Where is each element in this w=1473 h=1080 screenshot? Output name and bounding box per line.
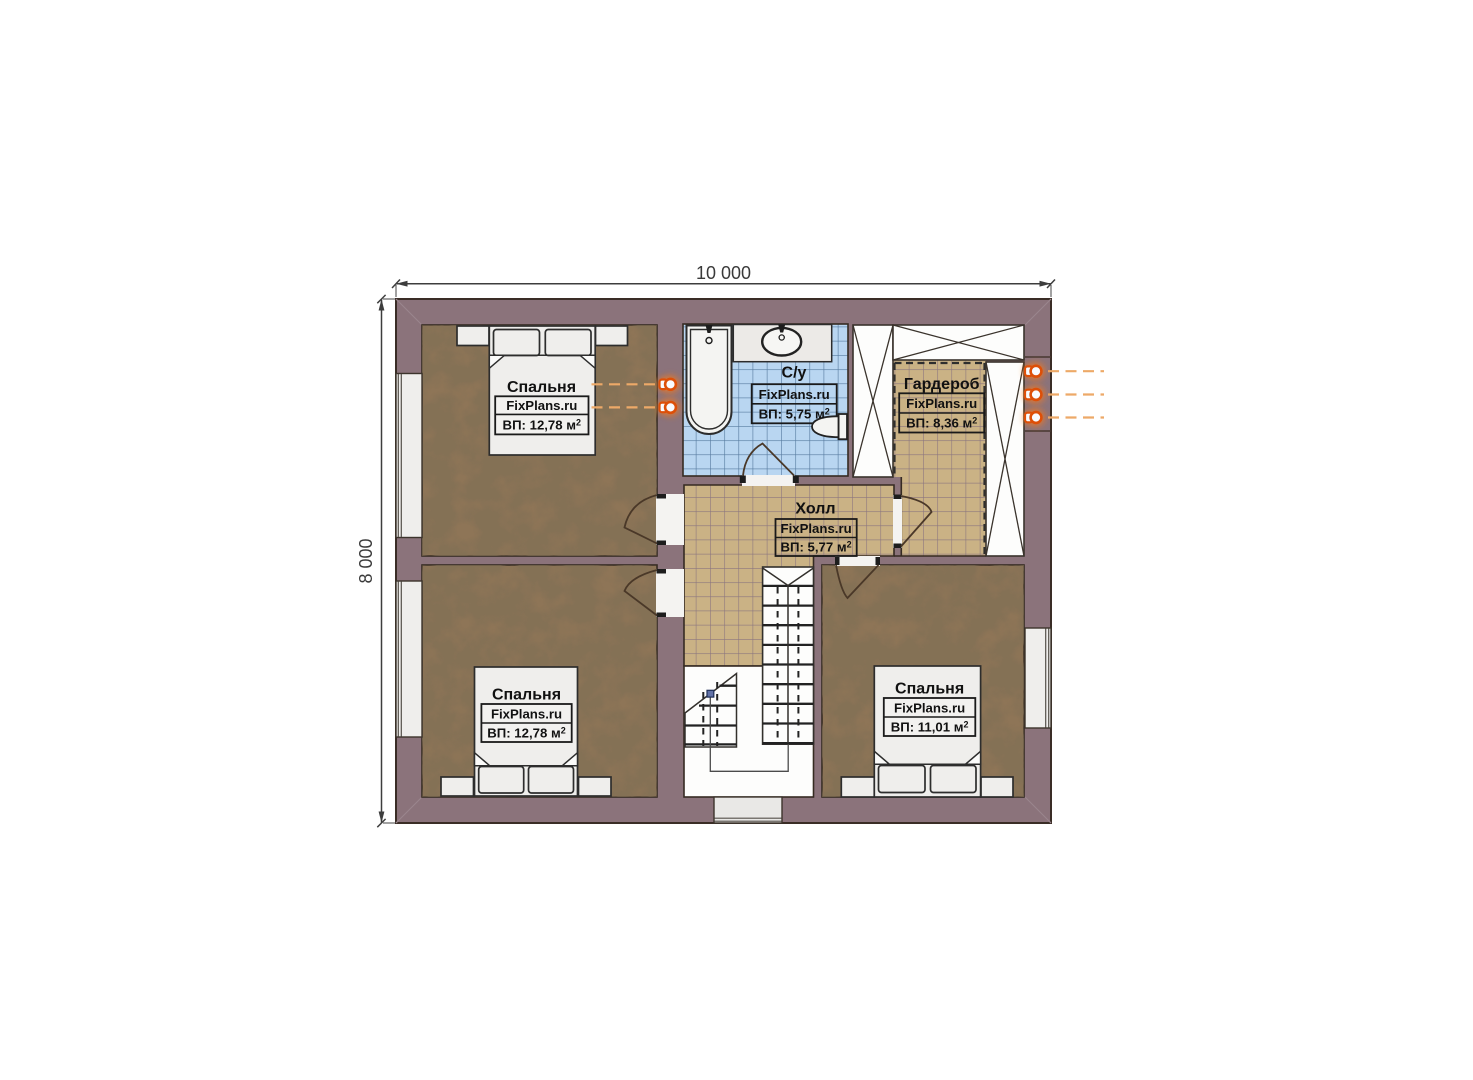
svg-text:8 000: 8 000 [356, 538, 376, 583]
svg-text:FixPlans.ru: FixPlans.ru [906, 396, 977, 411]
svg-text:Гардероб: Гардероб [904, 376, 980, 393]
svg-text:10 000: 10 000 [696, 263, 751, 283]
svg-text:Холл: Холл [795, 501, 835, 518]
svg-text:FixPlans.ru: FixPlans.ru [491, 707, 562, 722]
svg-text:ВП: 12,78 м2: ВП: 12,78 м2 [487, 726, 566, 741]
svg-text:ВП: 5,75 м2: ВП: 5,75 м2 [759, 406, 830, 421]
svg-text:ВП: 8,36 м2: ВП: 8,36 м2 [906, 416, 977, 431]
svg-text:FixPlans.ru: FixPlans.ru [506, 398, 577, 413]
svg-text:Спальня: Спальня [507, 379, 576, 396]
svg-text:С/у: С/у [782, 365, 807, 382]
svg-text:FixPlans.ru: FixPlans.ru [759, 387, 830, 402]
svg-text:ВП: 5,77 м2: ВП: 5,77 м2 [781, 540, 852, 555]
svg-text:ВП: 11,01 м2: ВП: 11,01 м2 [891, 720, 969, 735]
svg-text:Спальня: Спальня [492, 687, 561, 704]
svg-text:Спальня: Спальня [895, 681, 964, 698]
svg-text:ВП: 12,78 м2: ВП: 12,78 м2 [503, 417, 582, 432]
svg-text:FixPlans.ru: FixPlans.ru [781, 521, 852, 536]
svg-text:FixPlans.ru: FixPlans.ru [894, 701, 965, 716]
